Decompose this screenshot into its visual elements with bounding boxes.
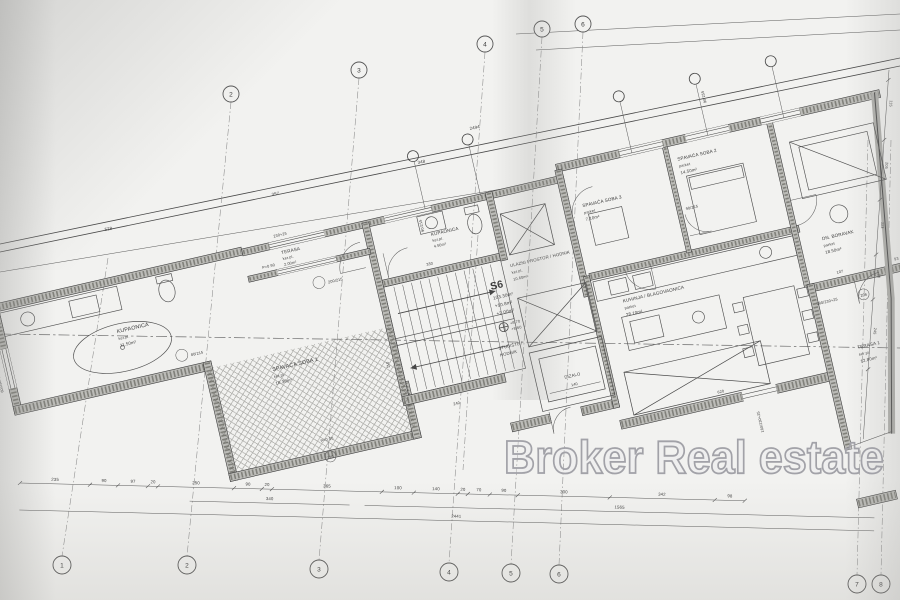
- svg-text:+2.00m²: +2.00m²: [496, 307, 515, 316]
- inner-dim: 620: [717, 389, 725, 394]
- axis-bubble-top-2: 2: [223, 86, 239, 102]
- svg-text:90: 90: [245, 482, 251, 487]
- coffee-table: [828, 203, 850, 225]
- window-marker: 230+25: [273, 232, 287, 239]
- dim-total: 2441: [451, 514, 462, 519]
- svg-text:4: 4: [483, 42, 487, 49]
- room-label-spavaca-soba-3: SPAVAĆA SOBA 3 parket 7.10m²: [582, 193, 626, 222]
- svg-text:28.10m²: 28.10m²: [626, 308, 644, 317]
- room-label-kupaonica-2: KUPAONICA ker.pl. 4.50m²: [430, 226, 462, 249]
- svg-text:2: 2: [229, 92, 233, 99]
- room-label-dizalo: DIZALO: [564, 371, 582, 380]
- svg-text:HODNIK: HODNIK: [499, 349, 517, 358]
- window: [741, 384, 777, 401]
- hex-marker: 110: [327, 455, 334, 460]
- toilet: [157, 278, 178, 303]
- room-label-boravak: DN. BORAVAK parket 18.50m²: [821, 229, 858, 255]
- inner-dim: 93: [894, 257, 899, 262]
- svg-text:20: 20: [460, 487, 466, 492]
- site-dim: 2494: [469, 124, 480, 131]
- sink: [19, 311, 36, 328]
- svg-text:98: 98: [727, 493, 733, 498]
- room-label-spavaca-soba-2: SPAVAĆA SOBA 2 parket 14.50m²: [677, 147, 721, 176]
- svg-text:ker.pl.: ker.pl.: [511, 268, 523, 274]
- site-dim: 357: [271, 190, 280, 197]
- walls: [0, 90, 900, 600]
- room-label-kupaonica-1: KUPAONICA ker.pl. 11.50m²: [116, 322, 152, 348]
- window: [0, 348, 17, 389]
- svg-text:KUHINJA / BLAGOVAONICA: KUHINJA / BLAGOVAONICA: [622, 284, 685, 303]
- door-marker: 380/230+25: [816, 297, 838, 306]
- svg-text:365: 365: [323, 483, 331, 488]
- svg-text:97: 97: [130, 479, 136, 484]
- window: [619, 140, 664, 158]
- svg-text:20: 20: [150, 479, 156, 484]
- axis-bubble-bottom-2: 2: [178, 556, 196, 574]
- svg-text:ULAZNI PROSTOR / HODNIK: ULAZNI PROSTOR / HODNIK: [510, 249, 571, 268]
- room-label-terasa: TERASA ker.pl. 2.00m²: [281, 246, 304, 267]
- svg-text:8: 8: [879, 582, 883, 589]
- svg-text:TERASA: TERASA: [281, 246, 302, 255]
- unit-id: S6: [489, 278, 505, 293]
- stair-dim: 330: [426, 261, 434, 266]
- hex-marker: 206: [860, 293, 868, 298]
- axis-bubble-top-4: 4: [477, 36, 493, 52]
- svg-text:205: 205: [884, 162, 888, 169]
- washer: [69, 295, 100, 318]
- svg-text:20: 20: [264, 482, 270, 487]
- svg-text:115: 115: [888, 100, 892, 107]
- axis-bubble-bottom-3: 3: [310, 560, 328, 578]
- axis-bubble-bottom-1: 1: [53, 556, 71, 574]
- living-fixtures: [583, 123, 894, 278]
- svg-text:90: 90: [501, 488, 507, 493]
- svg-text:3: 3: [357, 68, 361, 75]
- axis-bubble-top-5: 5: [534, 21, 550, 37]
- svg-text:4: 4: [447, 570, 451, 577]
- svg-text:113: 113: [880, 222, 884, 229]
- svg-text:90: 90: [101, 478, 107, 483]
- window-marker-symbols: [404, 55, 791, 210]
- svg-text:4.50m²: 4.50m²: [433, 242, 447, 249]
- axis-bubble-bottom-8: 8: [872, 575, 890, 593]
- floor-plan-drawing: 528 357 348 2494 2 3 4 5 6 1 2 3 4 5 6 7…: [0, 0, 900, 600]
- window-marker: 90/255: [701, 90, 708, 103]
- level-marker: P=0.90: [262, 263, 276, 270]
- svg-text:30: 30: [876, 274, 880, 279]
- svg-text:5: 5: [540, 27, 544, 34]
- room-label-terasa-1: TERASA 1 ker.pl. 12.80m²: [857, 340, 884, 364]
- dimension-chains: 235 90 97 20 250 90 20 365 100 140 20 70…: [17, 476, 875, 531]
- wardrobe-box: [500, 204, 554, 255]
- svg-text:7: 7: [855, 582, 859, 589]
- inner-dim: 107: [836, 269, 844, 274]
- door-marker: 90/215: [685, 204, 698, 211]
- svg-text:140: 140: [432, 486, 440, 491]
- svg-text:5: 5: [509, 571, 513, 578]
- svg-text:245: 245: [873, 328, 877, 335]
- svg-text:250: 250: [192, 480, 200, 485]
- axis-bubble-bottom-5: 5: [502, 564, 520, 582]
- axis-bubble-bottom-4: 4: [440, 563, 458, 581]
- svg-text:18.50m²: 18.50m²: [825, 246, 843, 255]
- window-marker: 60/250+25: [0, 373, 5, 393]
- svg-text:1: 1: [60, 563, 64, 570]
- svg-text:340: 340: [266, 496, 274, 501]
- dizalo-dim: 140: [571, 382, 579, 387]
- toilet: [466, 213, 484, 236]
- svg-text:SPAVAĆA SOBA 3: SPAVAĆA SOBA 3: [582, 193, 623, 208]
- svg-text:TERASA 1: TERASA 1: [857, 340, 881, 350]
- window: [760, 108, 801, 125]
- axis-bubble-bottom-7: 7: [848, 575, 866, 593]
- svg-text:11.50m²: 11.50m²: [119, 339, 137, 348]
- bed: [686, 163, 756, 235]
- sink: [424, 216, 438, 230]
- room-label-kuhinja: KUHINJA / BLAGOVAONICA parket 28.10m²: [622, 284, 688, 317]
- kitchen-sink: [758, 245, 772, 259]
- door-marker: 200/215: [328, 277, 343, 284]
- svg-text:6: 6: [581, 22, 585, 29]
- svg-text:7.10m²: 7.10m²: [585, 214, 600, 222]
- room-label-ulazni: ULAZNI PROSTOR / HODNIK ker.pl. 10.60m²: [510, 249, 574, 281]
- svg-text:DN. BORAVAK: DN. BORAVAK: [821, 229, 854, 241]
- svg-text:SPAVAĆA SOBA 2: SPAVAĆA SOBA 2: [677, 147, 718, 162]
- axis-bubble-top-3: 3: [351, 62, 367, 78]
- svg-text:70: 70: [476, 487, 482, 492]
- svg-text:2: 2: [185, 563, 189, 570]
- door-marker: 80/215: [191, 350, 204, 357]
- svg-text:100: 100: [394, 485, 402, 490]
- axis-bubble-top-6: 6: [575, 16, 591, 32]
- axis-bubble-bottom-6: 6: [550, 565, 568, 583]
- svg-text:KUPAONICA: KUPAONICA: [116, 322, 149, 335]
- site-dim: 528: [104, 225, 113, 232]
- svg-text:342: 342: [658, 492, 666, 497]
- svg-text:10.60m²: 10.60m²: [513, 274, 529, 281]
- svg-text:1565: 1565: [614, 505, 625, 510]
- svg-text:235: 235: [51, 477, 59, 482]
- watermark: Broker Real estate: [504, 430, 880, 484]
- svg-text:300: 300: [560, 489, 568, 494]
- svg-text:6: 6: [557, 572, 561, 579]
- stair-dim: 240: [453, 401, 461, 406]
- svg-text:3: 3: [317, 567, 321, 574]
